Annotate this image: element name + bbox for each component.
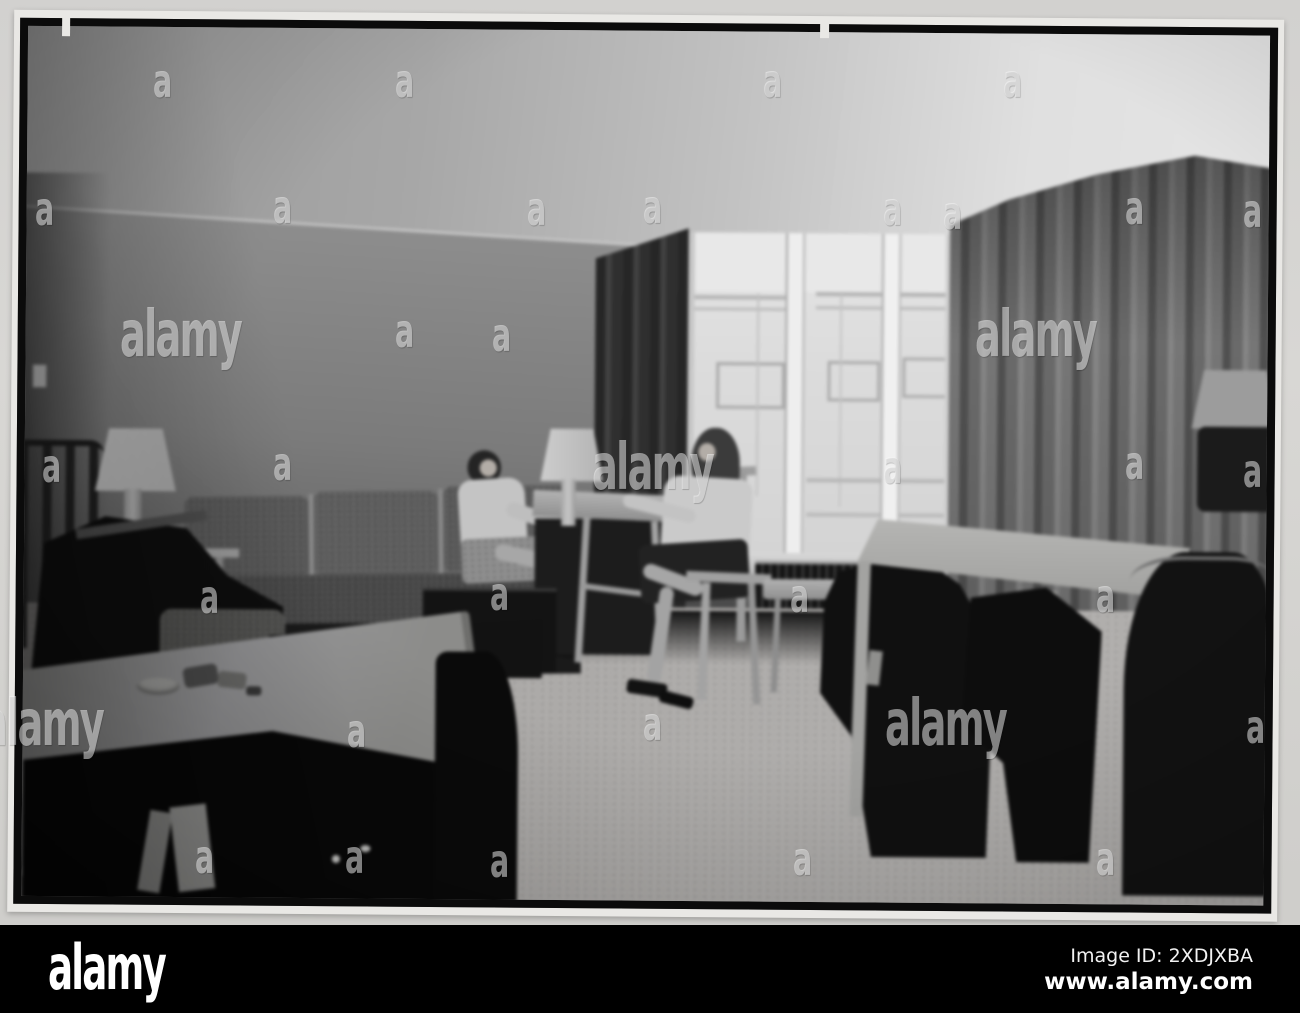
border-scratch	[62, 14, 70, 36]
image-id-text: Image ID: 2XDJXBA	[1070, 945, 1253, 967]
alamy-website-link[interactable]: www.alamy.com	[1044, 969, 1253, 995]
alamy-logo: alamy	[48, 937, 165, 999]
border-scratch	[820, 22, 829, 38]
footer-bar: alamy Image ID: 2XDJXBA www.alamy.com	[0, 925, 1300, 1013]
photo-print	[7, 10, 1284, 922]
photograph	[13, 18, 1278, 914]
lounge-scene	[14, 21, 1278, 911]
vignette	[14, 21, 1278, 911]
alamy-stock-photo-page: a a a a a a a a a a a a a a a a a a a a …	[0, 0, 1300, 1013]
